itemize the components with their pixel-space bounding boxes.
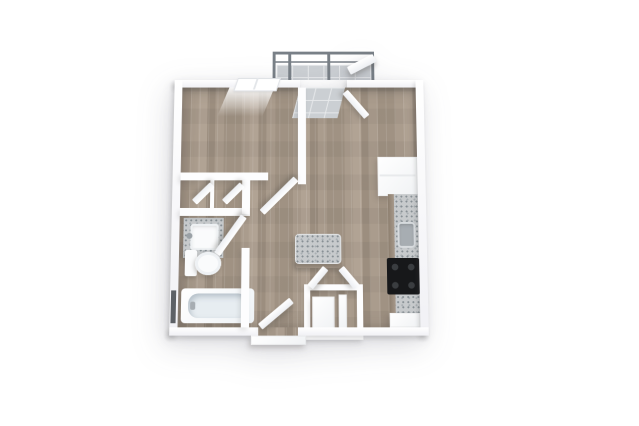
wall-top-right-segment — [347, 80, 423, 88]
bathtub-basin — [188, 293, 248, 318]
kitchen-end-cabinet — [390, 313, 421, 327]
wall-bathroom-east-lower — [241, 248, 250, 327]
kitchen-counter-top — [394, 194, 420, 313]
washer — [312, 297, 335, 330]
refrigerator-divider-line — [380, 174, 416, 176]
kitchen-sink — [397, 222, 416, 248]
wall-bedroom-living-divider — [298, 88, 306, 185]
wall-bottom-right-segment — [298, 327, 429, 335]
refrigerator — [377, 157, 417, 196]
entry-step — [251, 336, 306, 345]
balcony-railing-post — [288, 52, 291, 80]
entry-threshold — [258, 327, 298, 335]
balcony-railing-post — [327, 52, 330, 80]
kitchen-range — [387, 258, 420, 295]
kitchen-island-top — [295, 234, 341, 264]
balcony-railing-post — [273, 52, 276, 80]
building-footprint — [169, 80, 429, 336]
bathtub-faucet — [190, 302, 195, 310]
utility-panel — [339, 294, 347, 329]
bathroom-vanity-sink — [190, 224, 219, 250]
wall-bottom-left-segment — [169, 327, 258, 335]
floorplan-3d-wrapper — [169, 50, 429, 338]
floorplan-canvas — [0, 0, 639, 426]
wall-bedroom-south — [180, 172, 268, 180]
bathroom-slit-window — [170, 290, 176, 323]
